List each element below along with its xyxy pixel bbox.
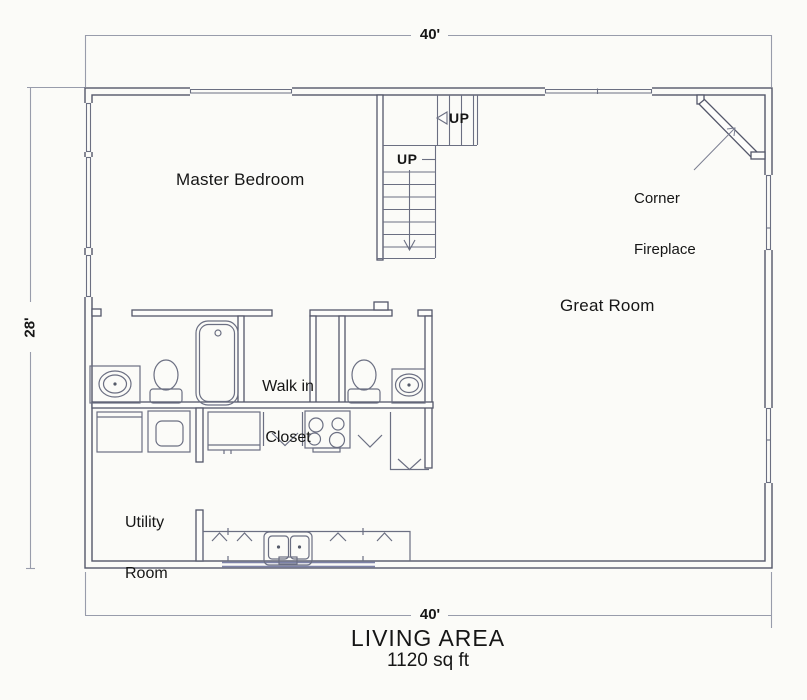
stairs-up-label-upper: UP: [449, 110, 469, 126]
cabinet-mark: [398, 459, 421, 470]
utility-room-label: Utility Room: [125, 480, 168, 616]
cabinet-mark: [377, 533, 392, 541]
burner: [330, 433, 345, 448]
master-bath-fixtures: [90, 321, 238, 405]
toilet-tank: [348, 389, 380, 403]
toilet-tank: [150, 389, 182, 403]
stairs-up-arrowhead: [437, 112, 447, 124]
corner-fireplace-label: Corner Fireplace: [634, 156, 696, 292]
cabinet-mark: [330, 533, 346, 541]
dimension-bottom: 40': [404, 606, 456, 623]
bathtub: [196, 321, 238, 405]
living-area-size: 1120 sq ft: [278, 650, 578, 672]
second-bath-fixtures: [348, 360, 425, 403]
burner: [332, 418, 344, 430]
tub-drain: [215, 330, 221, 336]
toilet-bowl: [352, 360, 376, 390]
corner-fireplace-drawing: [697, 95, 765, 159]
dimension-top: 40': [404, 26, 456, 43]
living-area-title: LIVING AREA: [278, 625, 578, 652]
fireplace-arrow: [694, 128, 735, 170]
toilet-bowl: [154, 360, 178, 390]
walk-in-closet-label: Walk in Closet: [250, 344, 326, 480]
stairs-up-label-lower: UP: [397, 151, 417, 167]
cabinet-mark: [237, 533, 252, 541]
utility-appliances: [97, 411, 190, 452]
bottom-counter: [203, 528, 410, 565]
master-bedroom-label: Master Bedroom: [176, 170, 304, 190]
great-room-label: Great Room: [560, 296, 655, 316]
washer: [97, 412, 142, 452]
cabinet-mark: [358, 435, 382, 447]
cabinet-mark: [212, 533, 227, 541]
floor-plan-drawing: [0, 0, 807, 700]
floor-plan: 40' 40' 28' Master Bedroom Great Room Wa…: [0, 0, 807, 700]
dimension-left: 28': [22, 304, 39, 352]
